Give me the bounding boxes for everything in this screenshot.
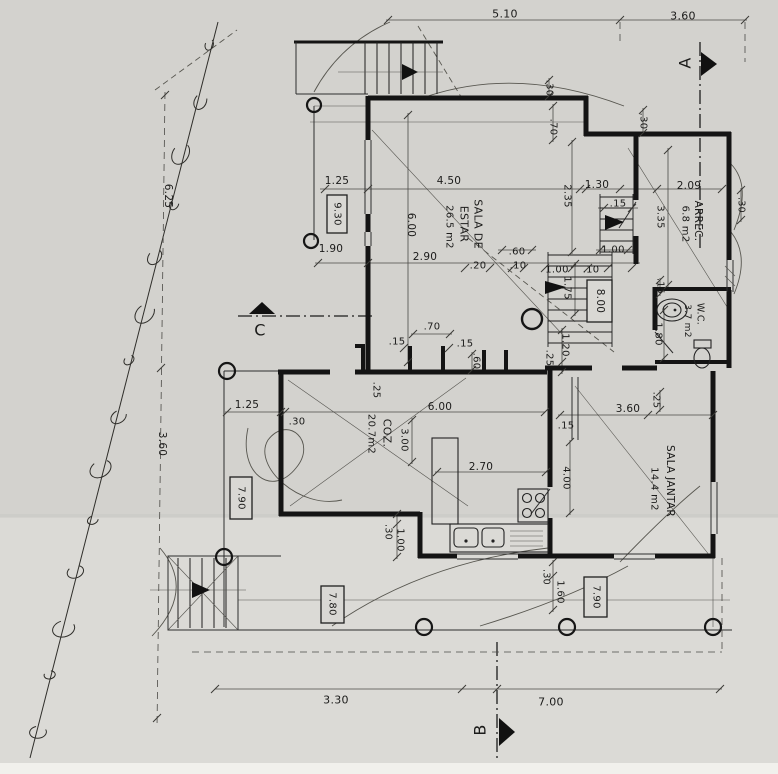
dim-label: 5.10 [492,8,518,21]
dim-label: .30 [736,197,747,213]
dim-label: 1.90 [319,243,344,255]
dim-label: .25 [371,382,382,399]
dim-label: .15 [389,337,406,348]
dim-label: 1.80 [653,322,664,345]
dim-label: .15 [457,339,474,350]
dim-label: .30 [638,113,649,130]
paper-background [0,0,778,774]
section-letter: B [471,724,490,735]
dim-label: 1.25 [325,175,350,187]
dim-label: 6.00 [428,401,453,413]
section-letter: A [676,57,695,68]
room-label: W.C. [695,303,706,325]
dim-label: 4.50 [437,175,462,187]
dim-label: 2.90 [413,251,438,263]
dim-label: 3.35 [655,205,666,228]
room-label: ESTAR [458,206,471,243]
dim-label: 1.25 [235,399,260,411]
floor-plan-drawing: 5.103.601.254.501.302.091.902.90.60.20.1… [0,0,778,774]
dim-label: 3.30 [323,694,349,707]
dim-label: .20 [470,261,487,272]
dim-label: 3.00 [399,428,410,451]
section-letter: C [254,321,265,340]
dim-label: 3.60 [156,432,168,457]
dim-label: 6.25 [162,184,174,209]
dim-label: 1.00 [545,265,568,276]
dim-label: .70 [548,119,559,136]
dim-label: 1.30 [585,179,610,191]
room-label: SALA JANTAR [664,445,676,517]
dim-label: .10 [510,261,527,272]
dim-label: .30 [541,569,552,585]
dim-label: 1.00 [601,245,624,256]
level-marker: 9.30 [332,202,343,225]
level-marker: 7.90 [236,486,247,509]
room-label: ARREC. [692,201,704,242]
dim-label: 3.60 [616,403,641,415]
level-marker: 8.00 [594,289,606,314]
dim-label: .10 [583,265,600,276]
room-area-label: 26.5 m2 [444,205,455,249]
dim-label: .15 [655,278,666,294]
dim-label: .30 [289,417,306,428]
room-area-label: 3.7 m2 [682,304,692,337]
dim-label: 1.20 [560,333,571,356]
room-area-label: 6.8 m2 [680,206,691,243]
dim-label: 3.60 [670,10,696,23]
dim-label: .30 [544,80,555,97]
floor-plan-page: 5.103.601.254.501.302.091.902.90.60.20.1… [0,0,778,774]
room-label: SALA DE [472,199,485,249]
dim-label: .70 [424,322,441,333]
room-label: COZ. [381,419,394,448]
room-area-label: 20.7m2 [366,414,377,454]
dim-label: 1.00 [395,528,406,551]
dim-label: 2.70 [469,461,494,473]
level-marker: 7.90 [591,585,602,608]
dim-label: 2.35 [562,184,573,207]
dim-label: .30 [383,524,394,540]
dim-label: 6.00 [405,213,417,238]
dim-label: .60 [471,353,482,370]
dim-label: 4.00 [561,466,572,489]
dim-label: .25 [651,392,662,409]
dim-label: 1.75 [562,276,573,299]
level-marker: 7.80 [327,592,338,615]
dim-label: 2.09 [677,180,702,192]
dim-label: .15 [558,421,575,432]
room-area-label: 14.4 m2 [649,467,660,511]
dim-label: .60 [509,247,526,258]
dim-label: .25 [544,350,555,367]
dim-label: 7.00 [538,696,564,709]
dim-label: 1.60 [555,580,566,603]
paper-bottom-strip [0,763,778,774]
dim-label: .15 [610,199,627,210]
